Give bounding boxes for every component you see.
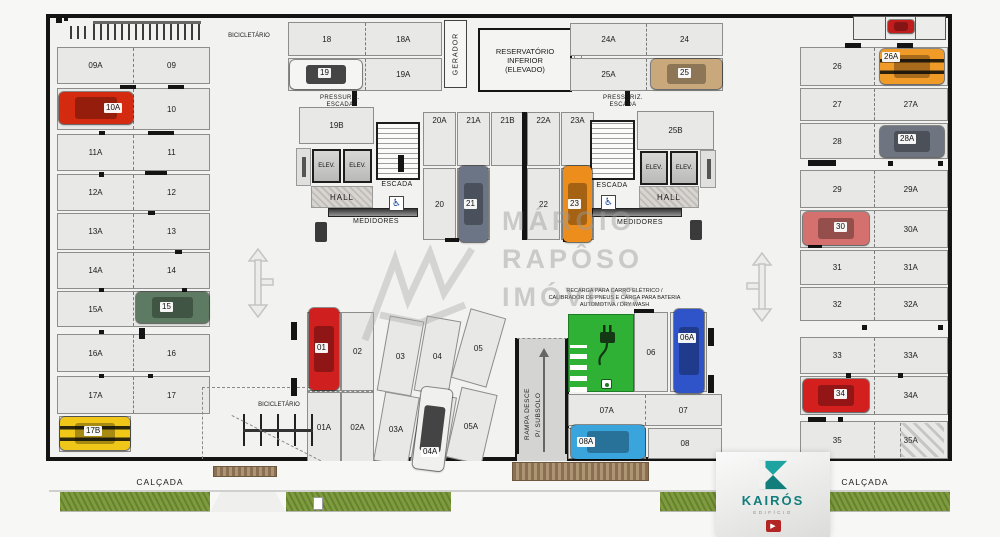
sidewalk-label-left: CALÇADA [120, 477, 200, 487]
hall: HALL [311, 186, 373, 208]
stall-label: 18A [396, 35, 410, 44]
stall-33-33a: 33 33A [800, 337, 948, 374]
stall-22: 22 [527, 168, 560, 240]
stall-label: 34A [904, 391, 918, 400]
brand-card: KAIRÓS EDIFÍCIO ▶ [716, 452, 830, 537]
moto-bay [700, 150, 716, 188]
moto-bay [296, 148, 311, 186]
elevator: ELEV. [670, 151, 698, 185]
stall-13a-13: 13A 13 [57, 213, 210, 250]
stall-label: 24A [601, 35, 615, 44]
bicicletario-bottom-label: BICICLETÁRIO [248, 402, 310, 408]
stall-20: 20 [423, 168, 456, 240]
grass-strip [60, 492, 210, 512]
paver-driveway [512, 462, 649, 481]
meter-bank [328, 208, 418, 217]
ramp-label: RAMPA DESCE [524, 388, 531, 440]
bike-rack-icon [93, 24, 201, 40]
floor-plan-canvas: BICICLETÁRIO 09A 09 10 10A 11A 11 12A 12… [0, 0, 1000, 537]
bench [213, 466, 277, 477]
stall-label: 10 [167, 105, 176, 114]
stall-27-27a: 27 27A [800, 88, 948, 121]
meter-pedestal [315, 222, 327, 242]
car-stall-label: 04A [421, 447, 439, 457]
ev-plug-icon [595, 325, 619, 373]
stall-label: 29 [833, 185, 842, 194]
car-stall-label: 01 [315, 343, 328, 353]
stall-24a-24: 24A 24 [570, 23, 723, 56]
elevator: ELEV. [640, 151, 668, 185]
grass-door [313, 497, 323, 510]
car-stall-label: 28A [898, 134, 916, 144]
generator-room: GERADOR [444, 20, 467, 88]
stall-11a-11: 11A 11 [57, 134, 210, 171]
car-small-red [888, 20, 914, 33]
stall-label: 07 [679, 406, 688, 415]
hatched-area [900, 423, 944, 457]
stall-label: 30A [904, 225, 918, 234]
circulation-arrow [744, 251, 778, 323]
sidewalk-label-right: CALÇADA [825, 477, 905, 487]
accessible-icon: ♿ [389, 196, 404, 211]
stall-label: 26 [833, 62, 842, 71]
accessible-icon: ♿ [601, 195, 616, 210]
car-stall-label: 15 [160, 302, 173, 312]
stall-label: 14A [88, 266, 102, 275]
stall-label: 15A [88, 305, 102, 314]
elevator: ELEV. [312, 149, 341, 183]
hall: HALL [639, 186, 699, 208]
stall-21a: 21A [457, 112, 490, 166]
stall-label: 12A [88, 188, 102, 197]
stall-02: 02 [341, 312, 374, 391]
stall-08: 08 [648, 428, 722, 459]
generator-label: GERADOR [452, 33, 459, 75]
stall-09a-09: 09A 09 [57, 47, 210, 84]
grass-strip [812, 492, 950, 512]
meters-label: MEDIDORES [338, 218, 414, 225]
car-stall-label: 19 [318, 68, 331, 78]
bike-rack-bar [243, 429, 313, 432]
car-blue [674, 309, 704, 393]
ev-charging-note: RECARGA PARA CARRO ELÉTRICO / CALIBRADOR… [512, 288, 717, 309]
stall-label: 13 [167, 227, 176, 236]
car-stall-label: 21 [464, 199, 477, 209]
stall-label: 28 [833, 137, 842, 146]
stall-label: 25A [601, 70, 615, 79]
stall-label: 17 [167, 391, 176, 400]
stall-label: 16 [167, 349, 176, 358]
brand-logo-icon [754, 459, 792, 491]
car-stall-label: 10A [104, 103, 122, 113]
stall-label: 33A [904, 351, 918, 360]
car-stall-label: 23 [568, 199, 581, 209]
stall-label: 16A [88, 349, 102, 358]
stall-29-29a: 29 29A [800, 170, 948, 208]
brand-name: KAIRÓS [742, 493, 805, 508]
stall-label: 29A [904, 185, 918, 194]
stall-label: 27 [833, 100, 842, 109]
stall-label: 11A [89, 148, 103, 157]
ev-charging-bay [568, 314, 634, 392]
stairs-label: ESCADA [372, 181, 422, 188]
circulation-arrow [242, 247, 276, 319]
stall-label: 13A [88, 227, 102, 236]
stall-label: 27A [904, 100, 918, 109]
stall-label: 07A [600, 406, 614, 415]
stall-12a-12: 12A 12 [57, 174, 210, 211]
stall-label: 24 [680, 35, 689, 44]
meter-pedestal [690, 220, 702, 240]
stall-18-18a: 18 18A [288, 22, 442, 56]
stall-label: 09 [167, 61, 176, 70]
stall-label: 17A [88, 391, 102, 400]
stall-label: 11 [167, 148, 175, 157]
bicicletario-top-label: BICICLETÁRIO [218, 33, 280, 39]
stall-label: 12 [167, 188, 176, 197]
reservoir-label: (ELEVADO) [505, 65, 545, 74]
stall-label: 35 [833, 436, 842, 445]
ramp-label: P/ SUBSOLO [535, 393, 542, 437]
bike-rack-icon [70, 26, 90, 39]
stall-label: 31 [833, 263, 842, 272]
stall-17a-17: 17A 17 [57, 376, 210, 414]
stall-label: 09A [88, 61, 102, 70]
stall-22a: 22A [527, 112, 560, 166]
stall-label: 32 [833, 300, 842, 309]
stall-25b: 25B [637, 111, 714, 150]
stall-16a-16: 16A 16 [57, 334, 210, 372]
car-stall-label: 08A [577, 437, 595, 447]
brand-subtitle: EDIFÍCIO [753, 510, 793, 515]
grass-strip [286, 492, 451, 512]
pressurized-stair-label: PRESSURIZ. ESCADA [592, 95, 654, 109]
stall-19b: 19B [299, 107, 374, 144]
stall-label: 18 [322, 35, 331, 44]
stall-32-32a: 32 32A [800, 287, 948, 321]
reservoir-label: INFERIOR [507, 56, 543, 65]
car-stall-label: 30 [834, 222, 847, 232]
brand-red-icon: ▶ [766, 520, 781, 532]
stall-label: 31A [904, 263, 918, 272]
car-stall-label: 25 [678, 68, 691, 78]
stairs [590, 120, 635, 180]
stall-06: 06 [634, 312, 668, 392]
stall-07a-07: 07A 07 [568, 394, 722, 426]
car-stall-label: 06A [678, 333, 696, 343]
stall-14a-14: 14A 14 [57, 252, 210, 289]
meters-label: MEDIDORES [602, 219, 678, 226]
car-stall-label: 17B [84, 426, 102, 436]
stall-02a: 02A [341, 392, 374, 463]
stall-20a: 20A [423, 112, 456, 166]
stairs-label: ESCADA [586, 182, 638, 189]
stall-label: 14 [167, 266, 176, 275]
stall-31-31a: 31 31A [800, 250, 948, 285]
stall-label: 19A [396, 70, 410, 79]
grass-strip [660, 492, 717, 512]
reservoir-label: RESERVATÓRIO [496, 47, 554, 56]
elevator: ELEV. [343, 149, 372, 183]
stall-label: 32A [904, 300, 918, 309]
car-stall-label: 34 [834, 389, 847, 399]
car-stall-label: 26A [882, 52, 900, 62]
water-reservoir: RESERVATÓRIO INFERIOR (ELEVADO) [478, 28, 572, 92]
stall-21b: 21B [491, 112, 524, 166]
stall-label: 33 [833, 351, 842, 360]
path-through-grass [210, 492, 286, 512]
